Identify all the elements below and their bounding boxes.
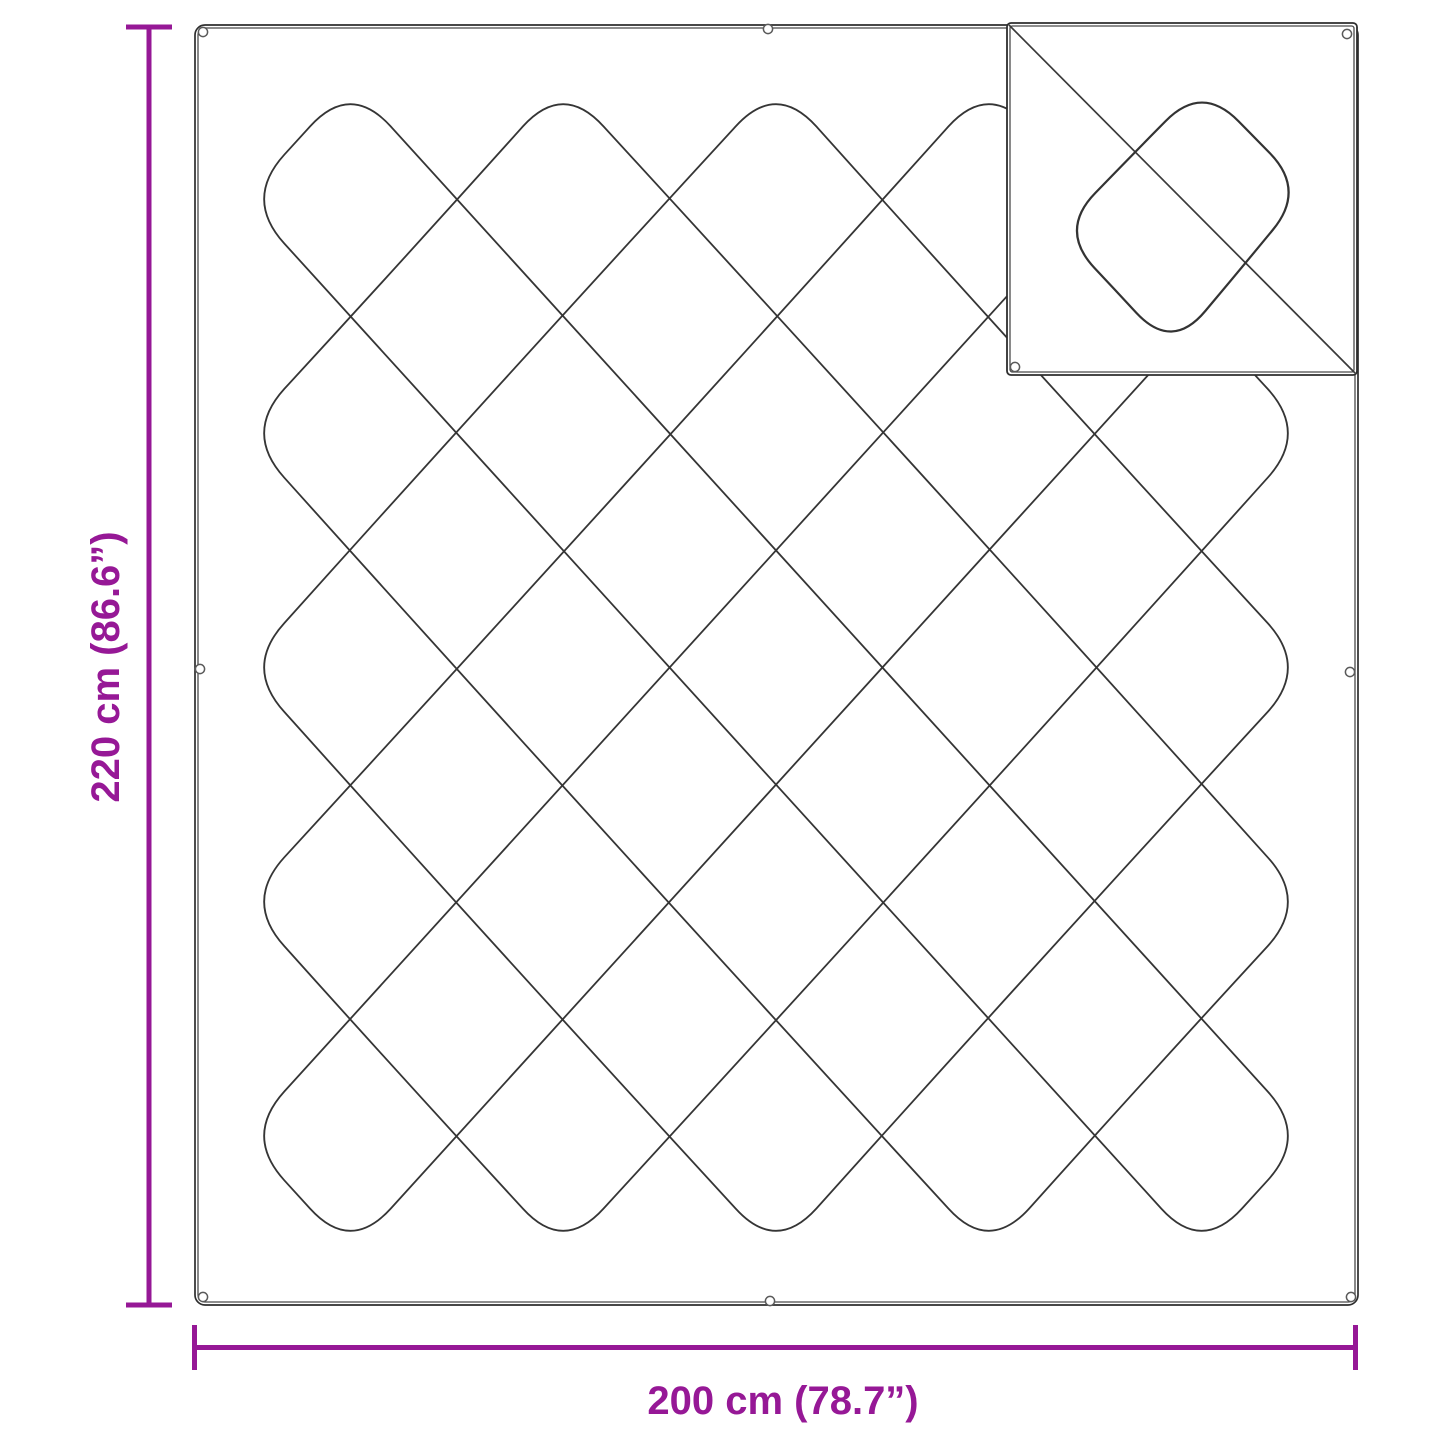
svg-text:200 cm (78.7”): 200 cm (78.7”) (647, 1379, 918, 1423)
svg-text:220 cm (86.6”): 220 cm (86.6”) (84, 531, 128, 802)
